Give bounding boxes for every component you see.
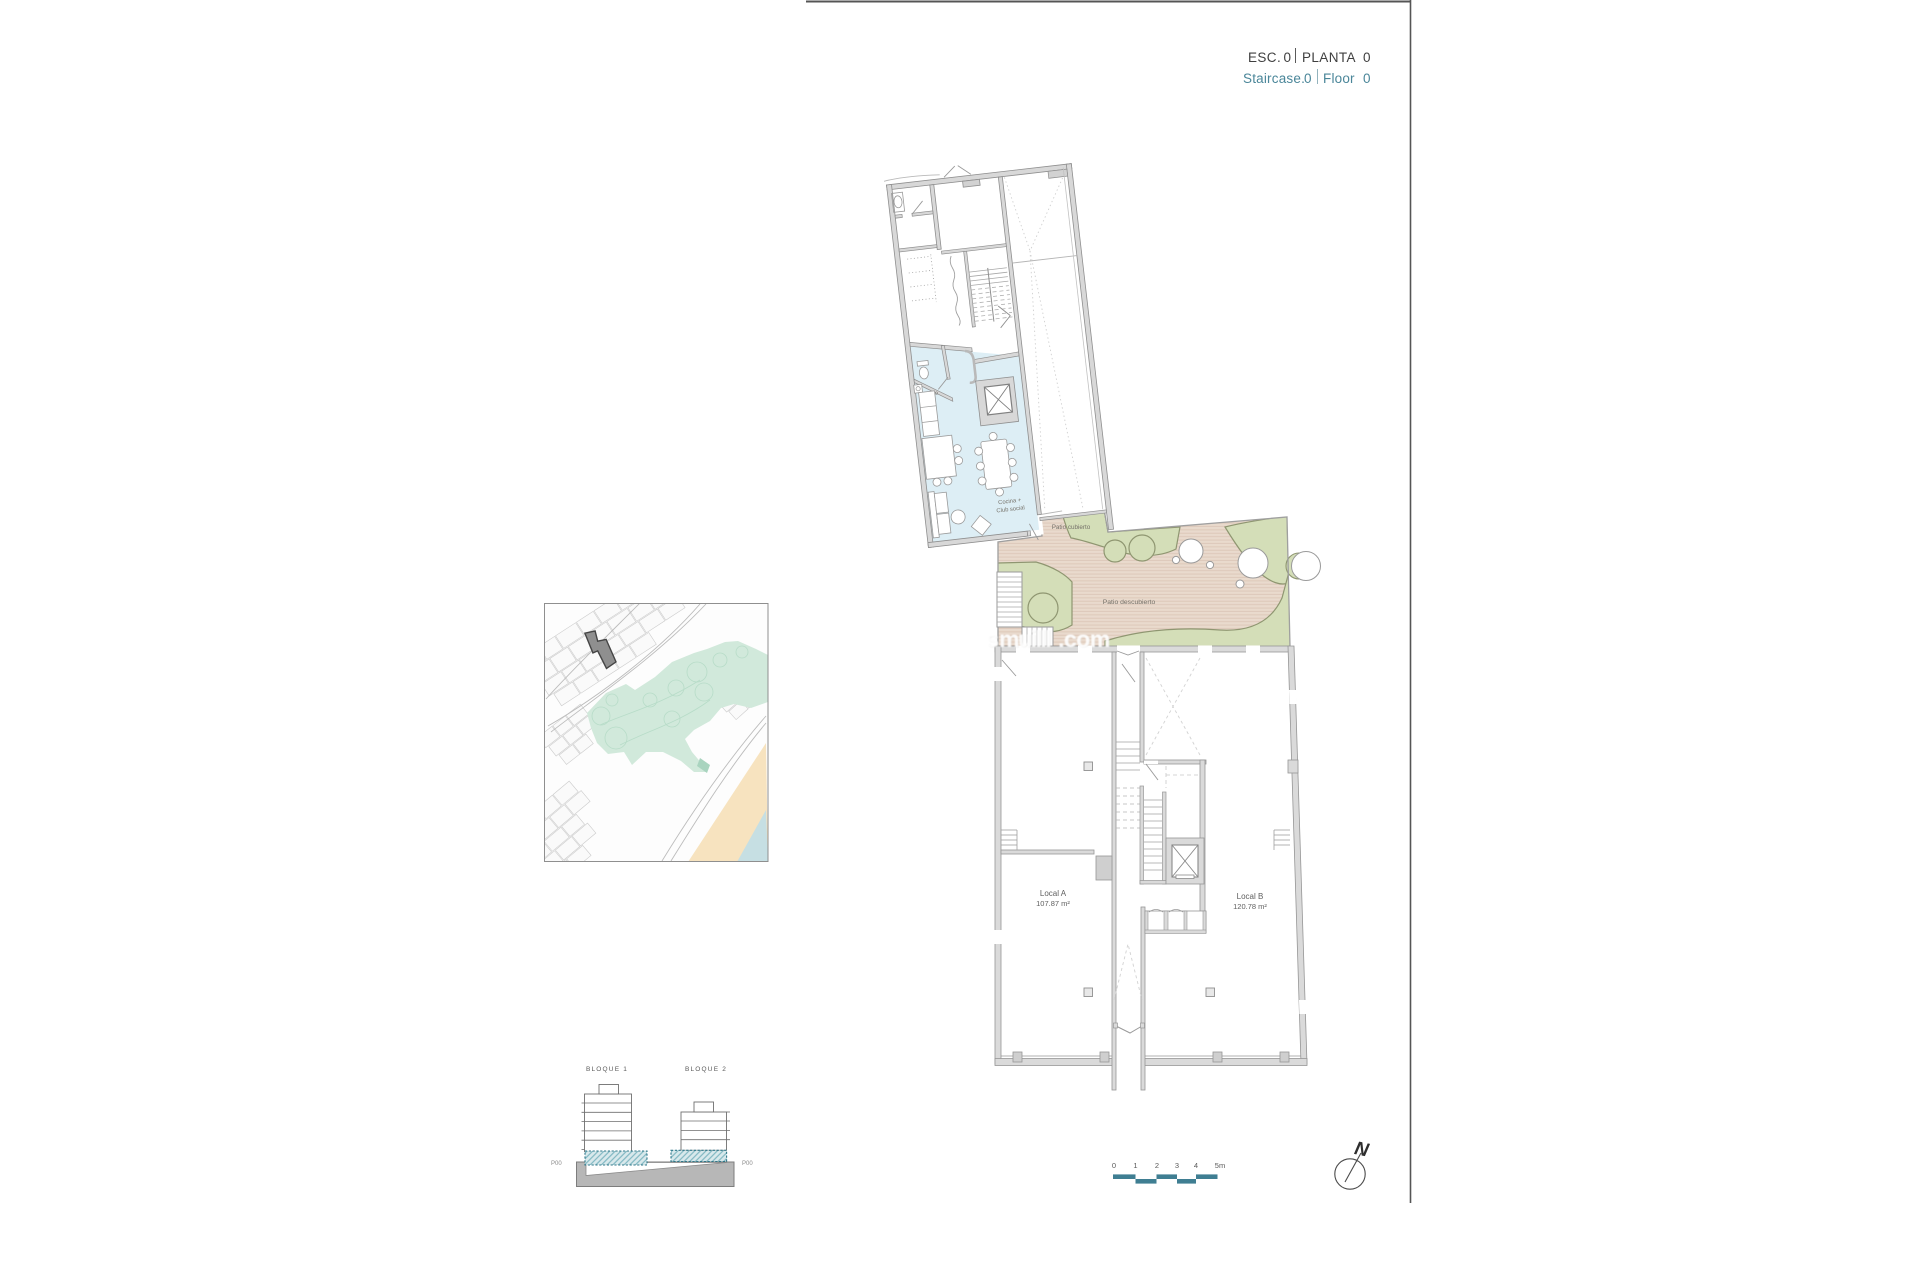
svg-text:2: 2 [1155,1161,1159,1170]
svg-text:0: 0 [1304,71,1312,86]
svg-text:0: 0 [1363,50,1371,65]
svg-text:.com: .com [1058,626,1110,652]
svg-text:0: 0 [1363,71,1371,86]
svg-text:Patio cubierto: Patio cubierto [1052,524,1091,531]
svg-text:Patio descubierto: Patio descubierto [1103,599,1156,606]
svg-text:Staircase.: Staircase. [1243,71,1305,86]
svg-text:s: s [986,626,999,652]
svg-text:120.78 m²: 120.78 m² [1233,902,1267,911]
svg-text:107.87 m²: 107.87 m² [1036,899,1070,908]
svg-text:0: 0 [1112,1161,1116,1170]
svg-text:1: 1 [1133,1161,1137,1170]
svg-text:Local B: Local B [1237,892,1264,901]
svg-text:N: N [1353,1138,1372,1162]
svg-text:0: 0 [1284,50,1292,65]
svg-text:3: 3 [1175,1161,1179,1170]
svg-text:P00: P00 [742,1161,753,1167]
svg-text:ESC.: ESC. [1248,50,1281,65]
svg-text:P00: P00 [551,1161,562,1167]
svg-text:4: 4 [1194,1161,1198,1170]
svg-text:Floor: Floor [1323,71,1355,86]
svg-text:5m: 5m [1215,1161,1225,1170]
svg-text:Local A: Local A [1040,889,1067,898]
svg-text:BLOQUE 1: BLOQUE 1 [586,1066,628,1073]
svg-text:muilll: muilll [999,626,1050,652]
svg-text:BLOQUE 2: BLOQUE 2 [685,1066,727,1073]
svg-text:PLANTA: PLANTA [1302,50,1356,65]
